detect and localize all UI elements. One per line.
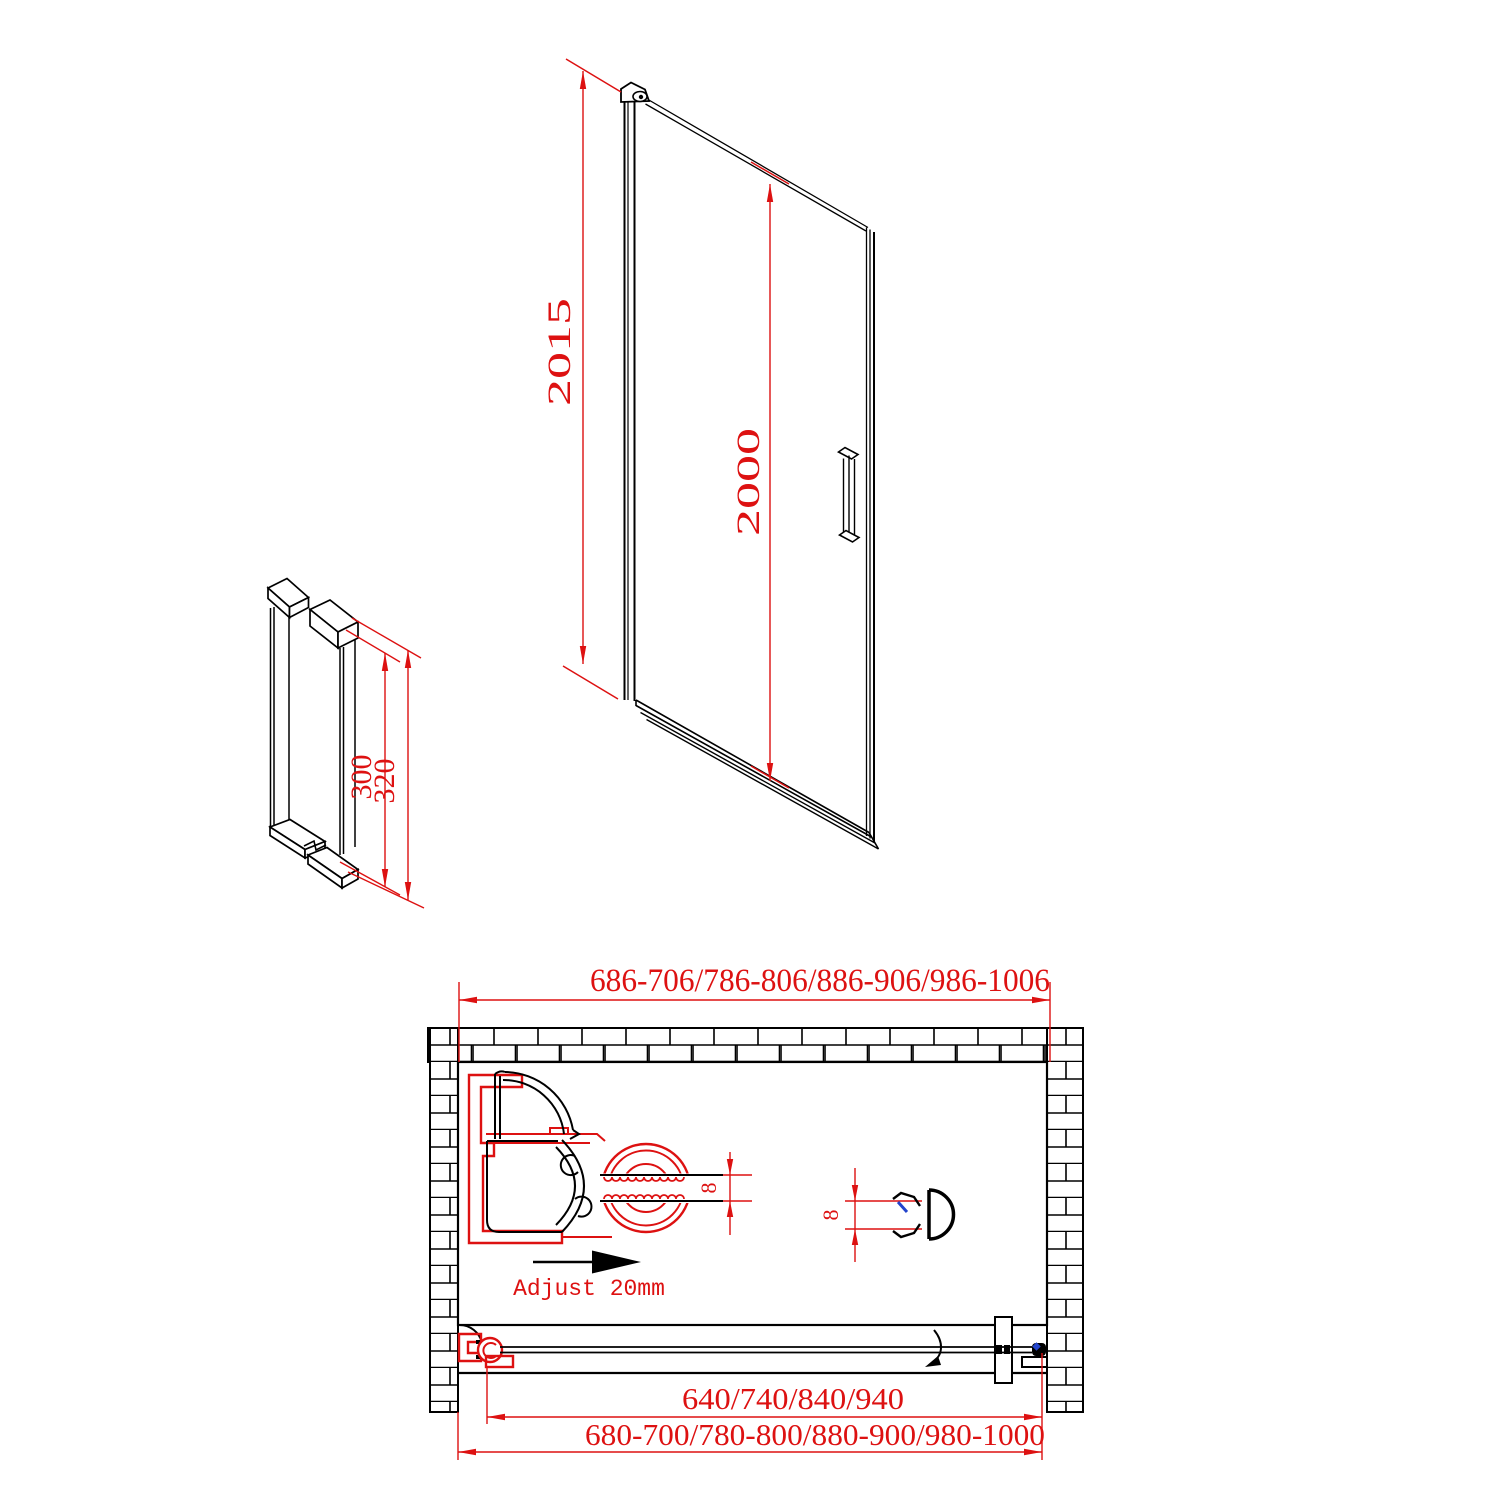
dim-8-hinge-label: 8 xyxy=(696,1183,721,1194)
shower-door-technical-drawing: 2015 2000 xyxy=(0,0,1500,1500)
adjust-note-label: Adjust 20mm xyxy=(513,1276,665,1302)
wall-seal-block xyxy=(1022,1357,1047,1367)
dim-overall-width-label: 686-706/786-806/886-906/986-1006 xyxy=(590,963,1050,999)
door-elevation: 2015 2000 xyxy=(542,59,879,849)
dimension-glass-height: 2000 xyxy=(731,162,789,788)
bottom-rail-bottom-lines xyxy=(641,713,879,850)
handle-left-bar xyxy=(271,598,290,827)
dim-2000-label: 2000 xyxy=(731,428,767,536)
dim-320-label: 320 xyxy=(368,759,401,804)
dim-glass-width-label: 640/740/840/940 xyxy=(682,1381,904,1416)
jamb-clamp-block-left xyxy=(996,1345,1002,1354)
dim-300-arrow-top xyxy=(382,653,388,671)
dim-2015-arrow-top xyxy=(580,71,586,89)
handle-right-top-cap xyxy=(310,600,358,648)
right-wall-brick xyxy=(1047,1028,1083,1412)
dim-8-seal-label: 8 xyxy=(818,1210,843,1221)
top-pivot-pin-center xyxy=(639,95,643,99)
dimension-handle-outer: 320 xyxy=(368,650,411,900)
dim-2000-arrow-top xyxy=(767,184,773,202)
handle-detail: 300 320 xyxy=(268,579,424,909)
handle-shaft xyxy=(844,456,855,538)
top-wall-brick xyxy=(428,1028,1083,1062)
bottom-rail-end-caps xyxy=(636,700,879,849)
glass-right-edge xyxy=(867,228,871,839)
jamb-clamp-block-right xyxy=(1004,1345,1010,1354)
technical-drawing-page: 2015 2000 xyxy=(0,0,1500,1500)
dim-320-arrow-top xyxy=(405,650,411,668)
door-handle xyxy=(839,448,860,543)
door-glass-line xyxy=(500,1347,1032,1353)
dimension-total-height: 2015 xyxy=(542,59,621,699)
dim-2015-label: 2015 xyxy=(542,298,578,406)
handle-right-bar xyxy=(340,640,355,855)
dim-install-width-label: 680-700/780-800/880-900/980-1000 xyxy=(585,1417,1045,1452)
dim-320-arrow-bottom xyxy=(405,882,411,900)
dimension-install-width: 680-700/780-800/880-900/980-1000 xyxy=(458,1412,1045,1460)
bottom-rail-top-lines xyxy=(636,700,872,837)
plan-view: 8 Adjust 20mm 8 xyxy=(428,963,1083,1460)
dim-2015-arrow-bottom xyxy=(580,646,586,664)
handle-top-cap xyxy=(839,448,859,460)
handle-bottom-cap xyxy=(840,531,860,543)
dim-300-arrow-bottom xyxy=(382,869,388,887)
left-wall-brick xyxy=(430,1028,458,1412)
